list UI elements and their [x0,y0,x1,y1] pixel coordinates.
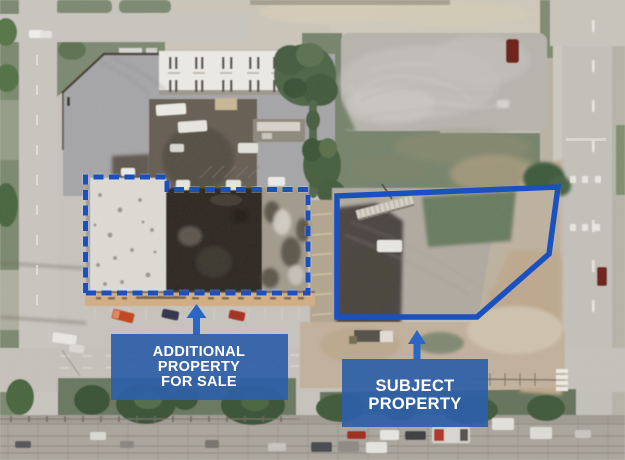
svg-text:ADDITIONAL: ADDITIONAL [153,344,245,360]
svg-text:SUBJECT: SUBJECT [375,377,454,395]
svg-text:PROPERTY: PROPERTY [368,395,461,413]
svg-text:FOR SALE: FOR SALE [161,374,237,390]
svg-text:PROPERTY: PROPERTY [158,359,240,375]
